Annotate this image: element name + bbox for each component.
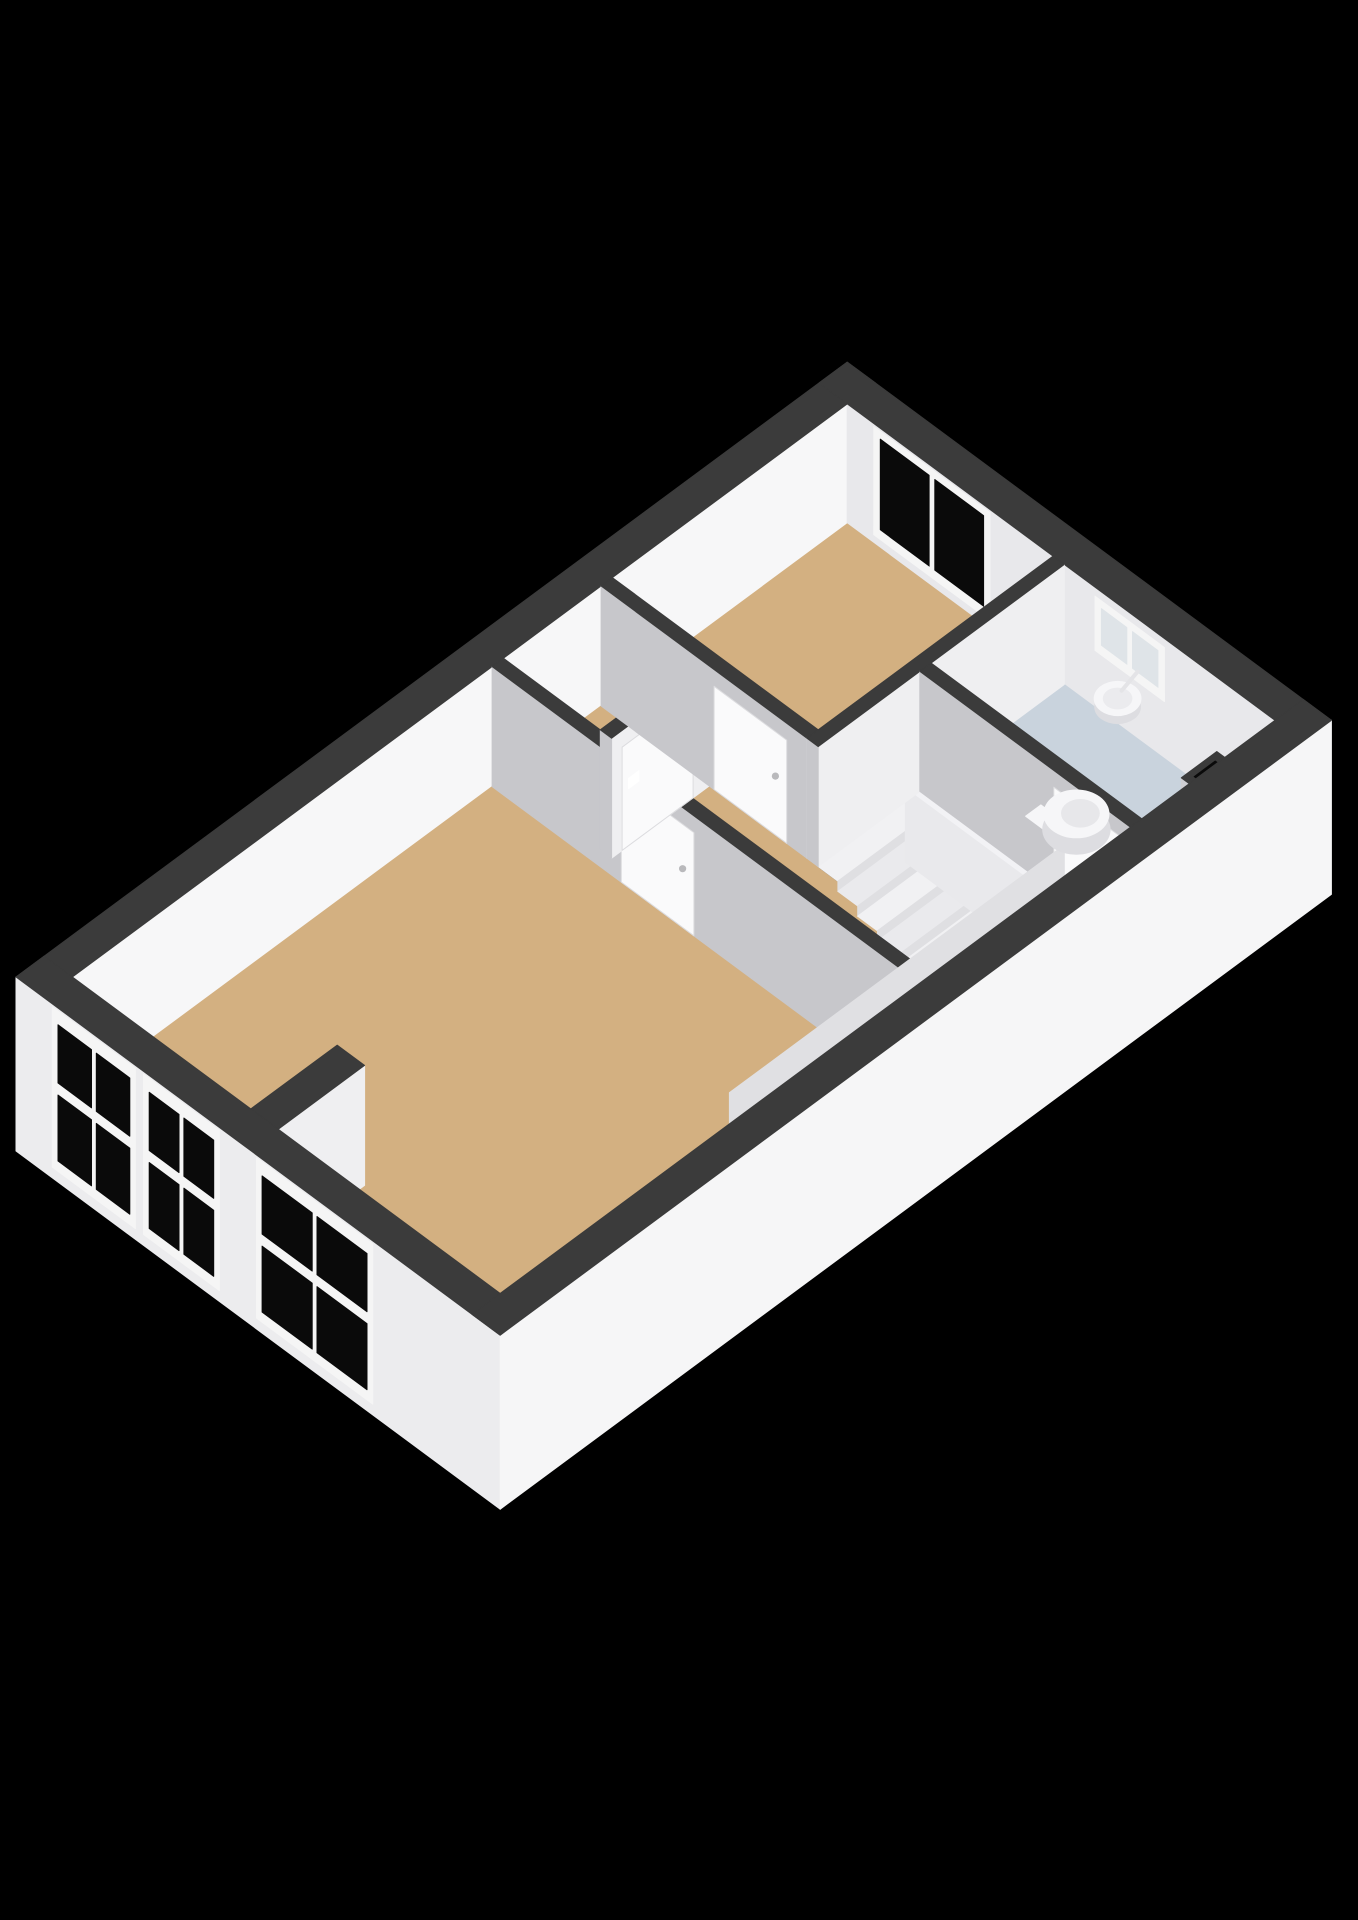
floorplan-3d [0, 0, 1358, 1920]
floorplan-svg [0, 0, 1358, 1920]
